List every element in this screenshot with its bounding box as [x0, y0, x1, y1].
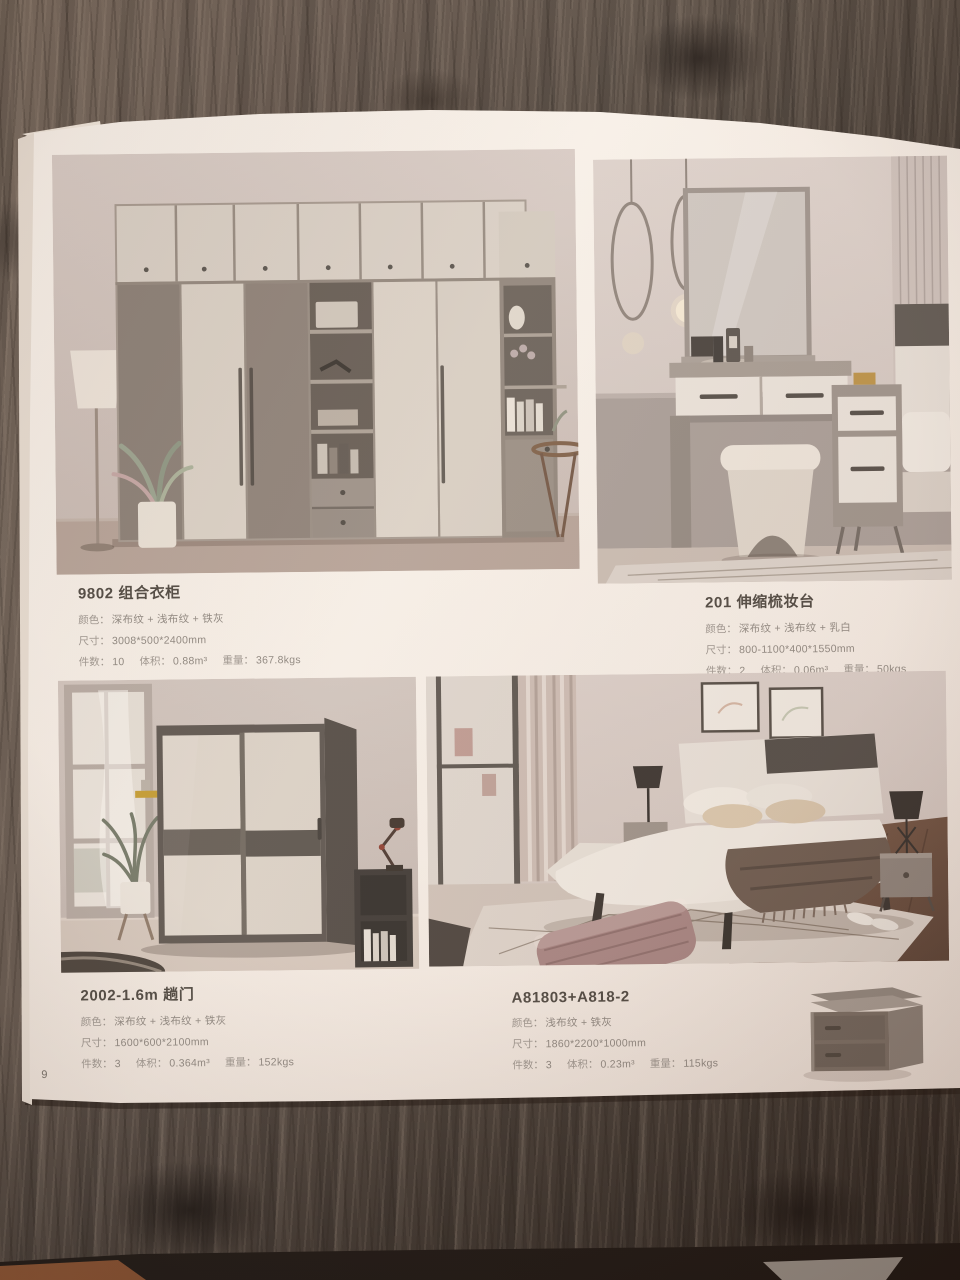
spec-size-value: 800-1100*400*1550mm [739, 639, 855, 661]
product-title: 201 伸缩梳妆台 [705, 589, 921, 612]
spec-volume-value: 0.364m³ [169, 1053, 210, 1074]
product-photo-sliding-wardrobe [58, 677, 419, 973]
spec-size: 尺寸： 800-1100*400*1550mm [705, 638, 921, 661]
product-photo-dressing-table [593, 156, 952, 584]
spec-qty-value: 3 [546, 1055, 552, 1076]
page-number: 9 [41, 1069, 47, 1081]
spec-size-label: 尺寸： [78, 631, 110, 652]
product-photo-nightstand [776, 977, 943, 1087]
spec-color-label: 颜色： [78, 610, 110, 631]
product-card-a81803: A81803+A818-2 颜色： 浅布纹 + 铁灰 尺寸： 1860*2200… [511, 987, 733, 1077]
catalog-photo-root: 9802 组合衣柜 颜色： 深布纹 + 浅布纹 + 铁灰 尺寸： 3008*50… [0, 0, 960, 1280]
product-photo-bed [426, 671, 949, 967]
spec-weight-value: 115kgs [683, 1053, 718, 1074]
spec-weight-label: 重量： [650, 1054, 682, 1075]
spec-color-value: 深布纹 + 浅布纹 + 乳白 [739, 618, 851, 640]
spec-size-label: 尺寸： [705, 640, 737, 661]
spec-color: 颜色： 深布纹 + 浅布纹 + 铁灰 [81, 1010, 309, 1034]
catalog-page: 9802 组合衣柜 颜色： 深布纹 + 浅布纹 + 铁灰 尺寸： 3008*50… [0, 0, 960, 1280]
spec-color-value: 深布纹 + 浅布纹 + 铁灰 [114, 1011, 226, 1033]
spec-size-value: 1600*600*2100mm [114, 1032, 209, 1054]
spec-qty-label: 件数： [81, 1054, 113, 1075]
spec-qty-value: 3 [115, 1054, 121, 1075]
spec-misc: 件数：3 体积：0.364m³ 重量：152kgs [81, 1052, 309, 1076]
spec-weight-label: 重量： [225, 1053, 257, 1074]
product-title: 2002-1.6m 趟门 [80, 982, 308, 1006]
spec-size: 尺寸： 3008*500*2400mm [78, 629, 316, 653]
spec-color: 颜色： 深布纹 + 浅布纹 + 乳白 [705, 617, 921, 640]
spec-qty-label: 件数： [79, 652, 111, 673]
spec-size-label: 尺寸： [512, 1034, 544, 1055]
spec-size-label: 尺寸： [81, 1033, 113, 1054]
spec-size: 尺寸： 1600*600*2100mm [81, 1031, 309, 1055]
product-card-9802: 9802 组合衣柜 颜色： 深布纹 + 浅布纹 + 铁灰 尺寸： 3008*50… [78, 580, 316, 674]
spec-weight-value: 367.8kgs [256, 650, 301, 672]
spec-size-value: 1860*2200*1000mm [545, 1033, 646, 1055]
spec-color-label: 颜色： [512, 1013, 544, 1034]
spec-qty-value: 10 [112, 652, 125, 673]
product-title: A81803+A818-2 [511, 987, 732, 1007]
product-card-2002: 2002-1.6m 趟门 颜色： 深布纹 + 浅布纹 + 铁灰 尺寸： 1600… [80, 982, 309, 1076]
spec-volume-label: 体积： [139, 652, 171, 673]
spec-weight-label: 重量： [222, 651, 254, 672]
product-title: 9802 组合衣柜 [78, 580, 316, 604]
spec-size-value: 3008*500*2400mm [112, 630, 207, 652]
spec-color-value: 浅布纹 + 铁灰 [545, 1013, 612, 1035]
spec-volume-label: 体积： [567, 1055, 599, 1076]
page-content: 9802 组合衣柜 颜色： 深布纹 + 浅布纹 + 铁灰 尺寸： 3008*50… [0, 0, 960, 1280]
product-card-201: 201 伸缩梳妆台 颜色： 深布纹 + 浅布纹 + 乳白 尺寸： 800-110… [705, 589, 922, 682]
spec-color: 颜色： 浅布纹 + 铁灰 [512, 1011, 733, 1035]
spec-misc: 件数：3 体积：0.23m³ 重量：115kgs [512, 1053, 733, 1077]
spec-color-label: 颜色： [81, 1012, 113, 1033]
spec-qty-label: 件数： [512, 1055, 544, 1076]
spec-color-label: 颜色： [705, 619, 737, 640]
spec-volume-value: 0.88m³ [173, 651, 208, 672]
spec-size: 尺寸： 1860*2200*1000mm [512, 1032, 733, 1056]
spec-volume-label: 体积： [136, 1054, 168, 1075]
product-photo-combination-wardrobe [52, 149, 580, 575]
spec-color: 颜色： 深布纹 + 浅布纹 + 铁灰 [78, 608, 316, 632]
spec-weight-value: 152kgs [258, 1052, 294, 1073]
spec-volume-value: 0.23m³ [600, 1054, 635, 1075]
spec-misc: 件数：10 体积：0.88m³ 重量：367.8kgs [79, 650, 317, 674]
spec-color-value: 深布纹 + 浅布纹 + 铁灰 [112, 609, 224, 631]
